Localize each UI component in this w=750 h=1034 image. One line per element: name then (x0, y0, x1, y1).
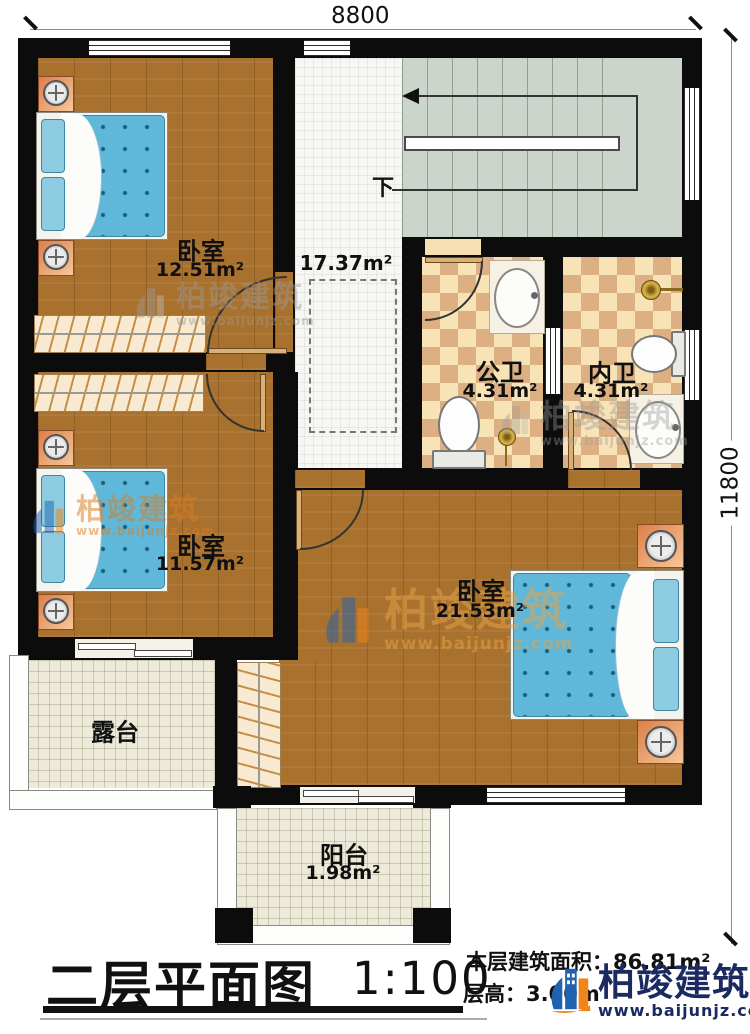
floor-drain-icon (498, 428, 516, 446)
toilet-tank (432, 450, 486, 469)
lamp-icon (43, 80, 69, 106)
pillow (41, 475, 65, 527)
door-gap-publicbath (425, 239, 481, 255)
master-wardrobe (237, 662, 281, 788)
publicbath-area-label: 4.31m² (463, 380, 538, 402)
top-dimension-label: 8800 (325, 3, 396, 29)
terrace-sliding-door (134, 650, 192, 657)
right-dimension-label: 11800 (718, 440, 744, 525)
shower-stem (658, 288, 683, 291)
brand-logo: 柏竣建筑 www.baijunjz.com (544, 964, 750, 1020)
nightstand (38, 76, 74, 112)
terrace-sliding-door (78, 643, 136, 650)
door-gap-master (295, 470, 365, 488)
master-bedroom-floor-extension (279, 660, 319, 785)
nightstand (637, 720, 684, 764)
nightstand (38, 430, 74, 466)
stair-handrail (404, 136, 620, 151)
pillow (41, 119, 65, 173)
lamp-icon (645, 530, 677, 562)
pillow (41, 177, 65, 231)
pillow (41, 531, 65, 583)
window-right-stairs (684, 88, 700, 200)
bedroom1-bed (36, 112, 168, 240)
nightstand (637, 524, 684, 568)
balcony-pillar (215, 908, 253, 943)
bedroom1-area-label: 12.51m² (156, 259, 244, 281)
brand-website: www.baijunjz.com (598, 1001, 750, 1020)
title-underline-thin (40, 1018, 487, 1020)
pillow (653, 579, 679, 643)
terrace-name-label: 露台 (91, 713, 139, 748)
balcony-pillar (413, 908, 451, 943)
balcony-pillar (213, 786, 251, 808)
window-top-bedroom1 (89, 40, 230, 56)
bedroom1-wardrobe (34, 315, 206, 353)
faucet-icon (531, 292, 538, 299)
hallway-area-label: 17.37m² (300, 251, 393, 275)
brand-logo-icon (544, 964, 594, 1014)
terrace-railing-bottom (9, 790, 217, 810)
mattress (513, 573, 631, 717)
balcony-railing-left (217, 808, 237, 914)
stairs-down-label: 下 (372, 170, 394, 202)
wall-bedroom2-master (273, 372, 298, 660)
balcony-sliding-door (358, 796, 414, 803)
balcony-sliding-door (303, 790, 359, 797)
master-bed (510, 570, 684, 720)
balcony-pillar (413, 786, 451, 808)
floor-drain-stem (505, 444, 507, 466)
stair-direction-line (636, 95, 638, 191)
window-master-bottom (487, 787, 625, 803)
ensuite-area-label: 4.31m² (574, 380, 649, 402)
master-area-label: 21.53m² (436, 600, 524, 622)
brand-company-name: 柏竣建筑 (598, 964, 750, 1001)
lamp-icon (645, 726, 677, 758)
lamp-icon (43, 598, 69, 624)
window-top-hallway (304, 40, 350, 56)
faucet-icon (672, 424, 679, 431)
floor-plan-page: 8800 11800 下 (0, 0, 750, 1034)
lamp-icon (43, 244, 69, 270)
wall-terrace-right (215, 660, 237, 790)
bedroom2-area-label: 11.57m² (156, 553, 244, 575)
title-underline-thick (43, 1006, 463, 1013)
door-gap-bedroom2 (206, 354, 266, 370)
bed-sheet (615, 571, 654, 719)
stair-arrow-icon (402, 88, 419, 104)
stair-direction-line (416, 95, 638, 97)
shower-head-icon (641, 280, 661, 300)
lamp-icon (43, 434, 69, 460)
window-right-ensuite (684, 330, 700, 400)
toilet-icon (438, 396, 480, 454)
pillow (653, 647, 679, 711)
door-gap-ensuite (568, 470, 640, 488)
window-bath-divider (545, 328, 561, 394)
nightstand (38, 594, 74, 630)
wall-hallway-publicbath (402, 257, 422, 470)
stair-direction-line (392, 189, 638, 191)
balcony-area-label: 1.98m² (306, 862, 381, 884)
bedroom2-wardrobe (34, 374, 204, 412)
toilet-icon (631, 335, 677, 373)
top-dimension-line (30, 29, 696, 30)
nightstand (38, 240, 74, 276)
hallway-void-outline (309, 279, 397, 433)
bedroom2-bed (36, 468, 168, 592)
balcony-railing-right (430, 808, 450, 914)
terrace-railing-left (9, 655, 29, 810)
wall-bottom-master (215, 785, 702, 805)
